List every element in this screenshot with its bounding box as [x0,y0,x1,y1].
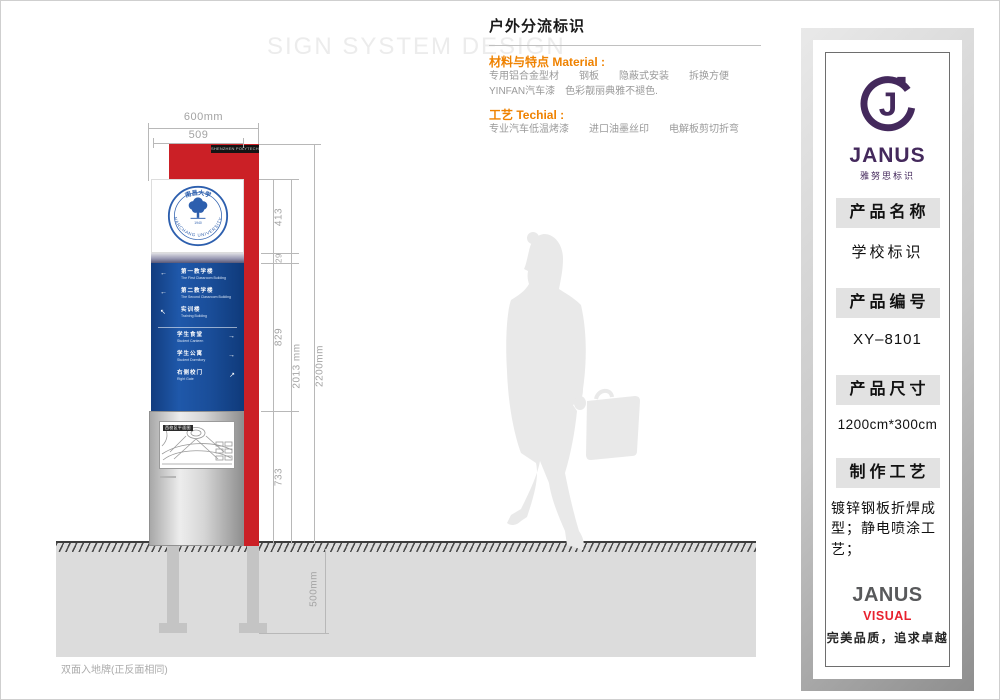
card-footer: JANUS VISUAL 完美品质，追求卓越 [826,584,949,646]
map-caption-mark [160,476,176,478]
directory-label-en: Right Gate [177,377,233,381]
directory-row: ↖ 实训楼Training Building [151,306,244,325]
drawing-caption: 双面入地牌(正反面相同) [61,661,168,676]
section-label-process: 制作工艺 [836,458,940,488]
product-card-frame: J JANUS 雅努思标识 产品名称 学校标识 产品编号 XY–8101 产品尺… [801,28,974,691]
sign-red-pole [244,179,259,546]
hand [574,396,586,410]
briefcase [586,396,640,460]
dim-extension [259,144,321,145]
foundation-footing [159,623,187,633]
dim-seg-strip-label: 29 [275,253,284,263]
map-title: 西校区平面图 [163,425,193,431]
section-label-product-code: 产品编号 [836,288,940,318]
material-line: 专用铝合金型材 钢板 隐蔽式安装 拆换方便 [489,70,761,85]
sign-header-strip: SHENZHEN POLYTECHNIC [211,145,259,153]
dim-inner-height-label: 2013 mm [292,343,303,388]
foundation-post [167,546,179,623]
dim-line [273,179,274,544]
directory-label-cn: 学生食堂 [177,332,233,339]
seal-year: 1940 [194,221,202,225]
directory-label-en: Training Building [181,314,237,318]
janus-logo-icon: J [851,63,925,137]
directory-label-en: Student Dormitory [177,358,233,362]
footer-brand: JANUS [852,584,922,606]
section-label-product-name: 产品名称 [836,198,940,228]
dim-extension [259,179,299,180]
arrow-up-left-icon: ↖ [160,308,166,316]
product-card: J JANUS 雅努思标识 产品名称 学校标识 产品编号 XY–8101 产品尺… [813,40,962,679]
directory-row: ← 第一教学楼The First Classroom Building [151,268,244,287]
directory-label-cn: 实训楼 [181,307,237,314]
technique-label: 工艺 Techial : [489,106,761,123]
brand-slogan: 完美品质，追求卓越 [826,629,949,646]
arrow-left-icon: ← [160,270,167,277]
material-label: 材料与特点 Material : [489,53,761,70]
foundation-footing [239,623,267,633]
arrow-left-icon: ← [160,289,167,296]
dim-tick [148,123,149,181]
dim-foundation-depth-label: 500mm [309,571,320,607]
brand-name: JANUS [826,144,949,168]
dim-extension [261,263,299,264]
sign-trim-strip [151,253,244,263]
dim-panel-width-label: 509 [161,129,236,141]
arrow-right-icon: → [228,333,235,340]
person-body-shape [506,234,586,550]
dim-extension [261,411,299,412]
arrow-up-right-icon: ↗ [229,371,235,379]
dim-tick [243,138,244,148]
design-sheet-page: SIGN SYSTEM DESIGN 户外分流标识 材料与特点 Material… [0,0,1000,700]
person-silhouette [441,201,691,561]
directory-row: 学生食堂Student Canteen → [151,331,244,350]
section-value-product-size: 1200cm*300cm [826,417,949,432]
dim-tick [258,123,259,144]
directory-label-cn: 右侧校门 [177,370,233,377]
directory-panel: ← 第一教学楼The First Classroom Building ← 第二… [151,263,244,411]
svg-text:J: J [878,87,897,124]
page-title: 户外分流标识 [489,15,761,46]
campus-map-panel: 西校区平面图 [159,421,235,469]
university-logo-panel: 南昌大学 1940 NANCHANG UNIVERSITY [151,179,244,253]
material-line: YINFAN汽车漆 色彩靓丽典雅不褪色. [489,85,761,100]
dim-line [314,144,315,544]
dim-seg-logo-label: 413 [274,208,285,226]
directory-row: 学生公寓Student Dormitory → [151,350,244,369]
directory-row: 右侧校门Right Gate ↗ [151,369,244,388]
briefcase-handle [596,391,612,399]
directory-label-en: Student Canteen [177,339,233,343]
sign-base-panel: 西校区平面图 [149,411,244,546]
brand-name-cn: 雅努思标识 [826,169,949,182]
dim-line [153,143,244,144]
directory-divider [158,327,237,328]
spec-header: 户外分流标识 材料与特点 Material : 专用铝合金型材 钢板 隐蔽式安装… [489,15,761,138]
directory-label-cn: 学生公寓 [177,351,233,358]
footer-brand-accent: VISUAL [863,609,912,623]
section-value-product-code: XY–8101 [826,331,949,348]
dim-tick [153,138,154,148]
university-seal: 南昌大学 1940 NANCHANG UNIVERSITY [167,185,229,247]
arrow-right-icon: → [228,352,235,359]
section-value-product-name: 学校标识 [826,241,949,262]
dim-seg-base-label: 733 [274,468,285,486]
dim-seg-blue-label: 829 [274,328,285,346]
dim-outer-height-label: 2200mm [315,345,326,387]
directory-label-en: The First Classroom Building [181,276,237,280]
product-card-inner: J JANUS 雅努思标识 产品名称 学校标识 产品编号 XY–8101 产品尺… [825,52,950,667]
section-label-product-size: 产品尺寸 [836,375,940,405]
directory-label-cn: 第二教学楼 [181,288,237,295]
dim-line [325,549,326,633]
directory-label-en: The Second Classroom Building [181,295,237,299]
directory-row: ← 第二教学楼The Second Classroom Building [151,287,244,306]
dim-tick [259,633,329,634]
section-value-process: 镀锌钢板折焊成型；静电喷涂工艺； [826,498,949,559]
foundation-post [247,546,259,623]
dim-top-width-label: 600mm [161,111,246,123]
technique-line: 专业汽车低温烤漆 进口油墨丝印 电解板剪切折弯 [489,123,761,138]
directory-label-cn: 第一教学楼 [181,269,237,276]
